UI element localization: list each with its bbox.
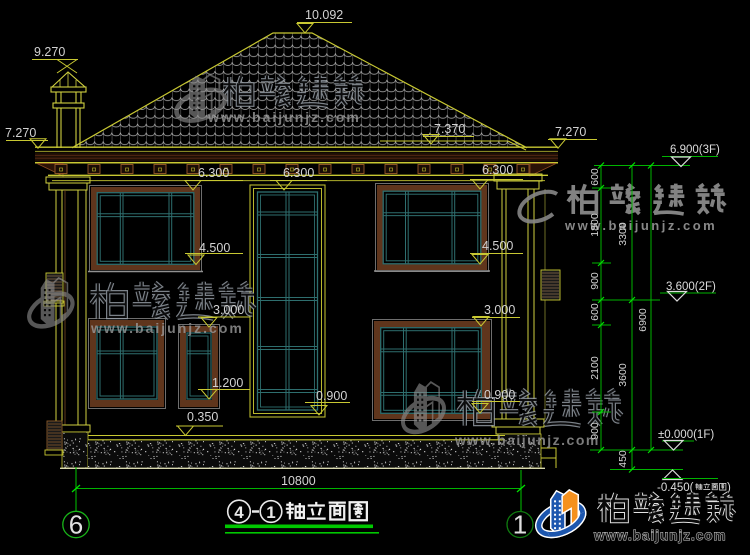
svg-text:6.900(3F): 6.900(3F)	[670, 144, 720, 156]
svg-text:6.300: 6.300	[283, 166, 314, 180]
svg-text:1: 1	[266, 503, 275, 522]
svg-text:6.300: 6.300	[198, 166, 229, 180]
svg-text:600: 600	[589, 303, 601, 321]
svg-text:0.900: 0.900	[316, 389, 347, 403]
svg-text:www.baijunjz.com: www.baijunjz.com	[454, 432, 600, 448]
svg-text:7.270: 7.270	[5, 126, 36, 140]
svg-text:3600: 3600	[617, 363, 629, 387]
svg-text:10.092: 10.092	[305, 8, 343, 22]
svg-text:9.270: 9.270	[34, 45, 65, 59]
svg-text:2100: 2100	[589, 356, 601, 380]
svg-text:-0.450(: -0.450(	[657, 482, 694, 494]
svg-text:6900: 6900	[637, 308, 649, 332]
svg-text:4: 4	[234, 503, 244, 522]
svg-text:0.350: 0.350	[187, 410, 218, 424]
svg-text:3.000: 3.000	[484, 303, 515, 317]
svg-text:1: 1	[513, 510, 527, 540]
svg-text:900: 900	[589, 272, 601, 290]
svg-text:3300: 3300	[617, 222, 629, 246]
svg-text:www.baijunjz.com: www.baijunjz.com	[593, 528, 727, 543]
svg-text:6.300: 6.300	[482, 163, 513, 177]
svg-text:6: 6	[69, 510, 83, 540]
svg-text:7.270: 7.270	[555, 125, 586, 139]
svg-text:450: 450	[617, 450, 629, 468]
svg-text:900: 900	[589, 422, 601, 440]
svg-text:www.baijunjz.com: www.baijunjz.com	[90, 320, 244, 336]
svg-text:1800: 1800	[589, 213, 601, 237]
svg-text:3.000: 3.000	[213, 303, 244, 317]
svg-text:±0.000(1F): ±0.000(1F)	[658, 429, 714, 441]
svg-text:1.200: 1.200	[212, 376, 243, 390]
svg-text:4.500: 4.500	[482, 239, 513, 253]
svg-text:4.500: 4.500	[199, 241, 230, 255]
svg-text:0.900: 0.900	[484, 388, 515, 402]
svg-text:600: 600	[589, 168, 601, 186]
svg-text:7.370: 7.370	[434, 122, 465, 136]
svg-text:10800: 10800	[281, 474, 316, 488]
svg-text:www.baijunjz.com: www.baijunjz.com	[564, 218, 717, 233]
svg-text:www.baijunjz.com: www.baijunjz.com	[207, 109, 361, 125]
